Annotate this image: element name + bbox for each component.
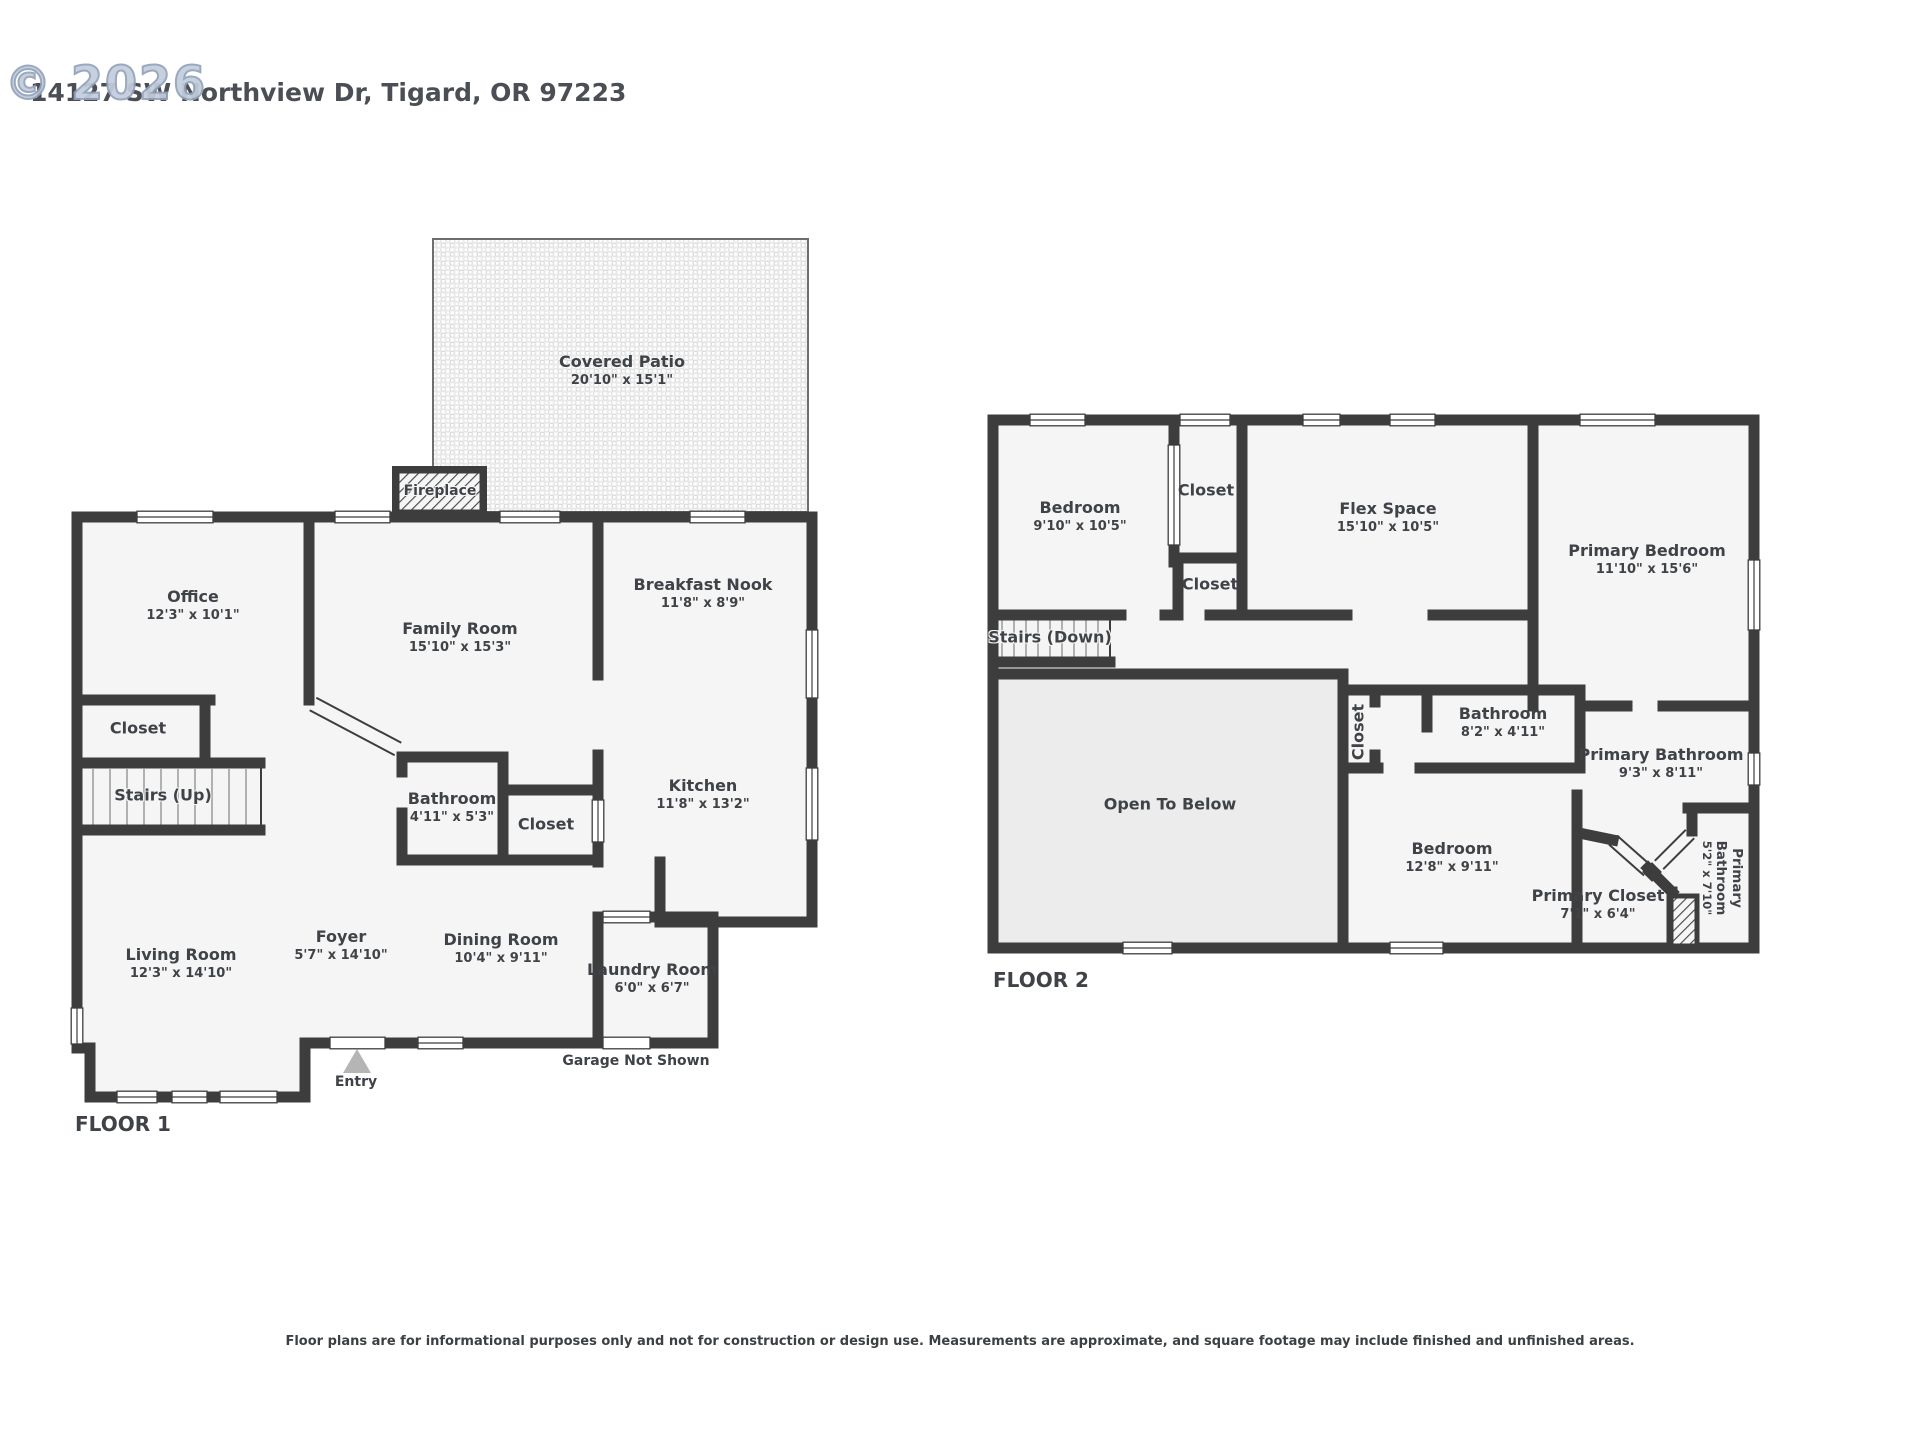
room-label-closet-hall-f2: Closet [1349,704,1370,760]
room-label-primary-closet: Primary Closet 7'1" x 6'4" [1532,886,1665,924]
room-label-closet-hall-f1: Closet [518,815,574,836]
copyright-watermark: © 2026 [5,56,207,110]
room-label-covered-patio: Covered Patio 20'10" x 15'1" [559,352,685,390]
room-label-closet-office: Closet [110,719,166,740]
room-label-bathroom-f2: Bathroom 8'2" x 4'11" [1459,704,1548,742]
room-label-primary-bedroom: Primary Bedroom 11'10" x 15'6" [1568,541,1726,579]
room-label-stairs-up: Stairs (Up) [114,786,212,807]
room-label-kitchen: Kitchen 11'8" x 13'2" [656,776,749,814]
room-label-breakfast-nook: Breakfast Nook 11'8" x 8'9" [634,575,773,613]
room-label-dining-room: Dining Room 10'4" x 9'11" [443,930,558,968]
room-label-flex-space: Flex Space 15'10" x 10'5" [1337,499,1439,537]
room-label-foyer: Foyer 5'7" x 14'10" [294,927,387,965]
room-label-primary-bathroom: Primary Bathroom 9'3" x 8'11" [1578,745,1743,783]
room-label-bedroom-f2-bottom: Bedroom 12'8" x 9'11" [1405,839,1498,877]
entry-arrow-icon [343,1049,371,1073]
room-label-bedroom-f2-left: Bedroom 9'10" x 10'5" [1033,498,1126,536]
room-label-closet-lower: Closet [1182,575,1238,596]
room-label-open-to-below: Open To Below [1104,795,1237,816]
room-label-primary-bathroom-small: Primary Bathroom 5'2" x 7'10" [1700,830,1744,926]
shower-hatch [1671,896,1697,946]
room-label-bathroom-f1: Bathroom 4'11" x 5'3" [408,789,497,827]
floor1-label: FLOOR 1 [75,1112,171,1136]
room-label-fireplace: Fireplace [404,482,477,500]
room-label-family-room: Family Room 15'10" x 15'3" [402,619,517,657]
room-label-closet-upper: Closet [1178,481,1234,502]
garage-note-label: Garage Not Shown [562,1052,709,1070]
floor2-label: FLOOR 2 [993,968,1089,992]
room-label-laundry-room: Laundry Room 6'0" x 6'7" [587,960,717,998]
disclaimer-text: Floor plans are for informational purpos… [0,1334,1920,1349]
room-label-office: Office 12'3" x 10'1" [146,587,239,625]
floorplan-svg [0,0,1920,1440]
room-label-living-room: Living Room 12'3" x 14'10" [126,945,237,983]
entry-label: Entry [335,1073,377,1091]
floorplan-page: © 2026 14127 SW Northview Dr, Tigard, OR… [0,0,1920,1440]
room-label-stairs-down: Stairs (Down) [988,628,1112,649]
